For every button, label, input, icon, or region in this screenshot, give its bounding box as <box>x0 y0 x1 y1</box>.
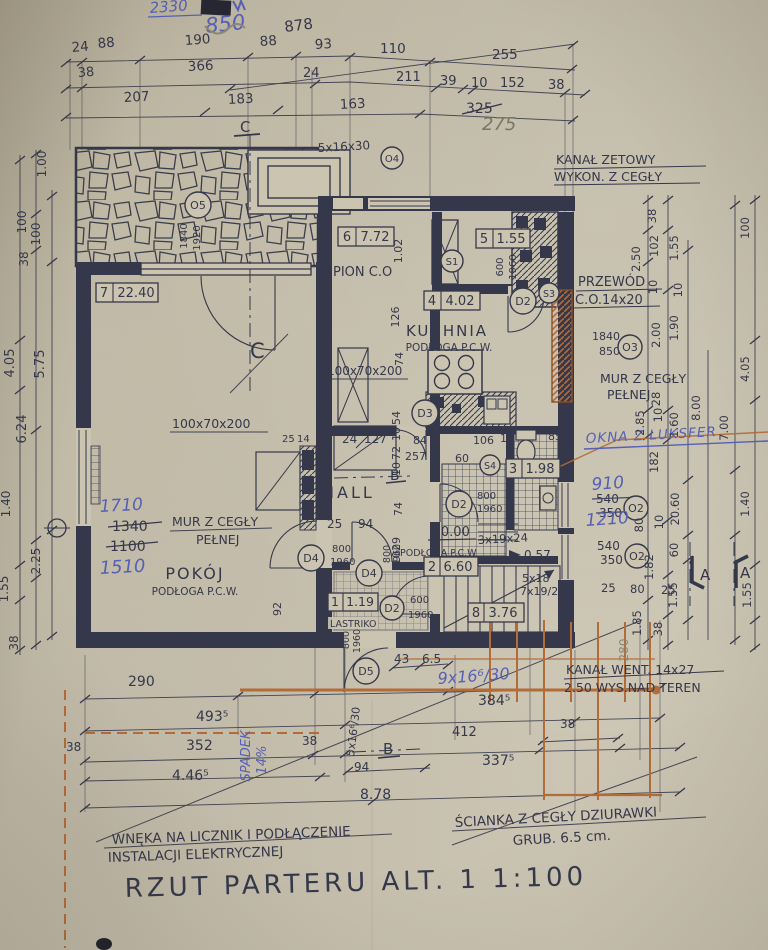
fixture-marker-s4: S4 <box>484 461 496 472</box>
dim: 1.55 <box>667 235 681 261</box>
section-marker-c: C <box>240 118 250 136</box>
dim: 88 <box>259 33 277 50</box>
dim: 84 <box>413 434 427 447</box>
note-pion-co: PION C.O <box>333 265 392 280</box>
dim: 24 <box>303 66 320 81</box>
dim: 126 <box>389 307 402 328</box>
window-size: 1840 <box>179 223 190 248</box>
note-mur-left-2: PEŁNEJ <box>196 532 239 547</box>
dim: 4.05 <box>3 349 18 378</box>
dim: 102 <box>647 235 661 257</box>
room-area: 1.19 <box>346 594 374 609</box>
door-marker-d4: D4 <box>361 567 376 580</box>
room-name-kuchnia: KUCHNIA <box>406 322 488 340</box>
dim: 88 <box>97 35 116 52</box>
door-size: 600 <box>410 595 429 606</box>
note-wneka: WNĘKA NA LICZNIK I PODŁĄCZENIE <box>112 824 351 848</box>
room-label-5: 5 1.55 <box>476 229 530 248</box>
note-scianka-2: GRUB. 6.5 cm. <box>512 828 611 849</box>
dim: 100 <box>738 217 752 239</box>
room-number: 1 <box>331 594 339 609</box>
dim: 1.60 <box>667 412 681 438</box>
dim: 8.78 <box>360 787 391 803</box>
dim: 92 <box>271 602 284 616</box>
dim: 38 <box>645 209 659 224</box>
note-przewod: PRZEWÓD <box>578 274 645 290</box>
window-marker-o4: O4 <box>385 154 399 165</box>
dim: 28 <box>649 392 663 407</box>
level-mark-057: 0.57 <box>524 548 551 562</box>
room-area: 3.76 <box>489 606 518 621</box>
room-number: 4 <box>428 294 436 309</box>
door-size: 800 <box>341 631 352 649</box>
door-marker-d5: D5 <box>358 665 373 678</box>
dim: 10 <box>471 76 488 91</box>
door-marker-d2: D2 <box>451 498 466 511</box>
dim: 384⁵ <box>478 693 510 709</box>
dim: 74 <box>393 352 406 366</box>
dim: 80 <box>632 518 646 533</box>
dim: 290 <box>128 674 155 690</box>
dim: 255 <box>492 47 518 63</box>
level-mark-zero: ±0.00 <box>430 525 470 540</box>
dim: 100 <box>15 211 29 234</box>
dim: 25 <box>601 581 616 595</box>
note-mur-right-2: PEŁNEJ <box>607 387 650 402</box>
window-size: 350 <box>600 553 623 567</box>
dim: 10 <box>390 462 403 476</box>
room-area: 22.40 <box>117 286 154 301</box>
dim: 38 <box>77 65 95 81</box>
room-name-pokoj: POKÓJ <box>165 564 224 583</box>
crossed-1100: 1100 <box>110 539 146 555</box>
washbasin <box>540 486 556 510</box>
dim: 43 <box>394 652 409 666</box>
door-marker-d4: D4 <box>303 552 318 565</box>
dim: 2.85 <box>633 410 647 436</box>
dim: 1.40 <box>738 491 752 517</box>
dim: 1.85 <box>630 610 644 636</box>
handwritten-1710: 1710 <box>99 495 143 517</box>
dim: 412 <box>452 725 477 740</box>
door-size: 600 <box>495 257 506 276</box>
door-size: 1960 <box>508 254 519 279</box>
dim: 183 <box>227 91 254 108</box>
section-marker-b: B <box>383 740 393 758</box>
dim: 10 <box>500 432 514 445</box>
sliding-door <box>141 263 311 275</box>
dim: 366 <box>187 58 214 75</box>
handwritten-steps: 9x16⁶/30 <box>437 664 510 688</box>
dim: 1.55 <box>0 576 11 603</box>
dim: 54 <box>390 411 403 425</box>
dim: 352 <box>186 738 213 754</box>
dim: 24 <box>342 432 357 446</box>
section-marker-a: A <box>700 566 711 584</box>
fixture-marker-s3: S3 <box>543 289 555 300</box>
dim: 337⁵ <box>482 753 514 769</box>
window-marker-o2: O2 <box>628 502 644 515</box>
window-marker-o3: O3 <box>622 341 638 354</box>
dim: 39 <box>440 74 457 89</box>
room-number: 2 <box>428 560 436 575</box>
dim: 93 <box>314 36 332 53</box>
room-number: 6 <box>343 230 351 245</box>
dim: 2330 <box>149 0 188 17</box>
fixture-marker-s1: S1 <box>446 257 459 268</box>
note-mur-left: MUR Z CEGŁY <box>172 514 258 529</box>
dim: 1.82 <box>642 554 656 580</box>
handwritten-1510: 1510 <box>99 556 146 579</box>
dim: 38 <box>7 635 21 650</box>
room-label-2: 2 6.60 <box>424 557 478 576</box>
room-label-4: 4 4.02 <box>424 291 480 310</box>
window-size: 1840 <box>592 330 620 343</box>
dim: 110 <box>380 41 406 57</box>
wardrobe-size: 100x70x200 <box>172 416 250 431</box>
note-kanal-zetowy-2: WYKON. Z CEGŁY <box>554 169 663 184</box>
room-number: 5 <box>480 232 488 247</box>
window-size: 850 <box>599 345 620 358</box>
room-number: 7 <box>100 286 108 301</box>
dim: 85 <box>548 430 562 443</box>
room-area: 7.72 <box>361 230 390 245</box>
dim: 38 <box>651 622 665 637</box>
dim: 5.75 <box>33 350 48 379</box>
note-mur-right: MUR Z CEGŁY <box>600 371 686 386</box>
stove <box>428 350 482 394</box>
door-size: 800 <box>477 491 496 502</box>
dim: 38 <box>560 717 575 731</box>
dim: 25 <box>661 583 676 597</box>
dim: 4.46⁵ <box>172 768 209 784</box>
drawing-title: RZUT PARTERU ALT. 1 1:100 <box>124 862 587 904</box>
dim: 24 <box>71 39 90 56</box>
right-annotations: KANAŁ ZETOWY WYKON. Z CEGŁY PRZEWÓD C.O.… <box>554 152 768 731</box>
dim: 10 <box>390 551 403 565</box>
window-size: 540 <box>597 539 620 553</box>
floor-plan-drawing: 2330 850 878 24 88 190 88 93 110 255 38 … <box>0 0 768 950</box>
note-kanal-went: KANAŁ WENT. 14x27 <box>566 662 694 677</box>
dim: 10 <box>651 408 665 423</box>
room-label-1: 1 1.19 <box>328 593 378 611</box>
pencil-280: 280 <box>617 639 631 662</box>
room-floor-1: LASTRIKO <box>330 619 376 630</box>
section-marker-a: A <box>740 564 751 582</box>
dim: 29 <box>390 537 403 551</box>
dim: 163 <box>339 96 366 113</box>
note-scianka: ŚCIANKA Z CEGŁY DZIURAWKI <box>454 802 657 831</box>
dim: 60 <box>667 543 681 558</box>
dim: 211 <box>396 70 421 85</box>
dim: 94 <box>354 760 369 774</box>
dim: 25 <box>282 434 295 445</box>
bottom-labels: 290 493⁵ 38 352 4.46⁵ 384⁵ 412 337⁵ 38 9… <box>66 664 657 904</box>
door-size: 800 <box>332 544 351 555</box>
dim: 10 <box>652 515 666 530</box>
crossed-1340: 1340 <box>112 519 148 535</box>
room-label-7: 7 22.40 <box>96 283 158 302</box>
dim: 1.00 <box>35 151 49 178</box>
dim: 8.00 <box>689 395 703 421</box>
dim: 38 <box>17 251 31 266</box>
dim: 38 <box>548 78 565 93</box>
dim: 182 <box>647 451 661 473</box>
dim: 80 <box>630 582 645 596</box>
radiator <box>91 446 100 504</box>
dim-handwritten: 275 <box>482 114 516 135</box>
handwritten-1210: 1210 <box>585 508 630 531</box>
dim: 190 <box>184 31 211 49</box>
dim: 7.00 <box>717 415 731 441</box>
door-size: 1960 <box>477 504 502 515</box>
dim: 100 <box>29 223 43 246</box>
door-size: 1960 <box>330 557 355 568</box>
dim: 14 <box>297 434 310 445</box>
dim: 1.90 <box>667 315 681 341</box>
room-floor-kuchnia: PODŁOGA P.C.W. <box>406 342 493 354</box>
dim: 207 <box>123 89 150 106</box>
stairs-7x19-24: 7x19/24 <box>520 585 565 598</box>
dim: 38 <box>66 740 81 754</box>
dim: 72 <box>390 446 403 460</box>
steps-label: 5x16x30 <box>317 138 370 155</box>
dim: 1.55 <box>740 582 754 608</box>
dim: 4.05 <box>738 356 752 382</box>
dimension-chain-left: 1.00 100 100 38 4.05 5.75 6.24 1.40 2.25… <box>0 151 70 651</box>
dim: 6.24 <box>15 415 30 444</box>
corridor-closet <box>338 348 368 422</box>
dim: 25 <box>327 517 342 531</box>
room-area: 6.60 <box>444 560 473 575</box>
room-label-3: 3 1.98 <box>506 459 560 478</box>
handwritten-spadek-pct: 14% <box>255 746 270 775</box>
room-number: 8 <box>472 606 480 621</box>
door-size: 1960 <box>408 610 433 621</box>
brick-duct-strip <box>552 290 572 402</box>
dim: 878 <box>283 15 314 36</box>
dim: 6.5 <box>422 652 441 666</box>
note-kanal-went-2: 2.50 WYS.NAD TEREN <box>564 680 701 695</box>
steps-label-rotated: 5x16⁶/30 <box>344 706 363 757</box>
dim: 94 <box>358 517 373 531</box>
room-area: 4.02 <box>446 294 475 309</box>
room-floor-pokoj: PODŁOGA P.C.W. <box>152 586 239 598</box>
dim: 106 <box>473 434 494 447</box>
door-size: 1960 <box>352 629 363 653</box>
dim: 2.50 <box>629 246 643 272</box>
dim: 10 <box>390 427 403 441</box>
dim: 74 <box>392 502 405 516</box>
window-marker-o5: O5 <box>190 199 206 212</box>
dim: 1.02 <box>392 239 405 264</box>
dim: 10 <box>646 280 660 295</box>
door-marker-d2: D2 <box>384 602 399 615</box>
dim: 2.00 <box>649 322 663 348</box>
room-number: 3 <box>509 462 517 477</box>
dim: 2.25 <box>29 548 43 575</box>
dim: 152 <box>500 76 525 91</box>
kitchen-sink <box>484 396 510 424</box>
window-size: 1920 <box>192 225 203 250</box>
dim: 60 <box>455 452 469 465</box>
blueprint-photo: { "title": "RZUT PARTERU ALT. 1 1:100", … <box>0 0 768 950</box>
section-letter-c: C <box>250 339 265 363</box>
dim: 493⁵ <box>196 709 228 725</box>
handwritten-spadek: SPADEK <box>239 729 254 782</box>
dim: 10 <box>671 283 685 298</box>
wardrobe-size-2: 100x70x200 <box>327 364 402 378</box>
stairs-5x18: 5x18 <box>522 572 550 585</box>
room-name-hall: HALL <box>322 483 375 502</box>
room-label-8: 8 3.76 <box>468 603 524 622</box>
room-area: 1.55 <box>497 232 526 247</box>
room-label-6: 6 7.72 <box>338 227 394 246</box>
stairs-3x19x24: 3x19x24 <box>477 530 528 547</box>
door-marker-d2: D2 <box>515 295 530 308</box>
dimension-chain-top: 2330 850 878 24 88 190 88 93 110 255 38 … <box>71 0 565 169</box>
dim: 257 <box>405 450 426 463</box>
note-kanal-zetowy: KANAŁ ZETOWY <box>556 152 656 167</box>
dim: 38 <box>302 734 317 748</box>
dim: 1.40 <box>0 491 13 518</box>
door-marker-d3: D3 <box>417 407 432 420</box>
dim: 127 <box>364 432 387 446</box>
room-area: 1.98 <box>526 462 555 477</box>
note-przewod-2: C.O.14x20 <box>575 293 643 308</box>
dim: 20.60 <box>668 493 682 526</box>
